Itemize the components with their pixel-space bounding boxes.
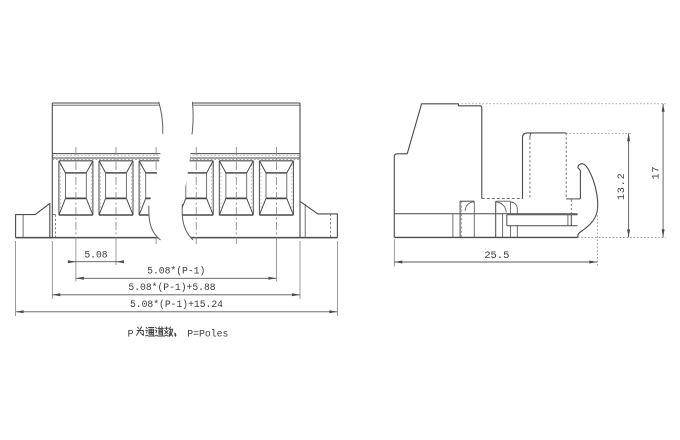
svg-text:5.08*(P-1)+5.88: 5.08*(P-1)+5.88 bbox=[128, 282, 215, 293]
svg-text:5.08*(P-1)+15.24: 5.08*(P-1)+15.24 bbox=[130, 299, 223, 310]
svg-text:P=Poles: P=Poles bbox=[187, 328, 228, 339]
svg-text:5.08*(P-1): 5.08*(P-1) bbox=[147, 265, 205, 276]
svg-text:13.2: 13.2 bbox=[617, 172, 628, 200]
svg-text:P: P bbox=[128, 329, 134, 340]
svg-text:25.5: 25.5 bbox=[484, 250, 509, 262]
svg-text:5.08: 5.08 bbox=[84, 250, 107, 261]
svg-text:17: 17 bbox=[652, 166, 663, 180]
